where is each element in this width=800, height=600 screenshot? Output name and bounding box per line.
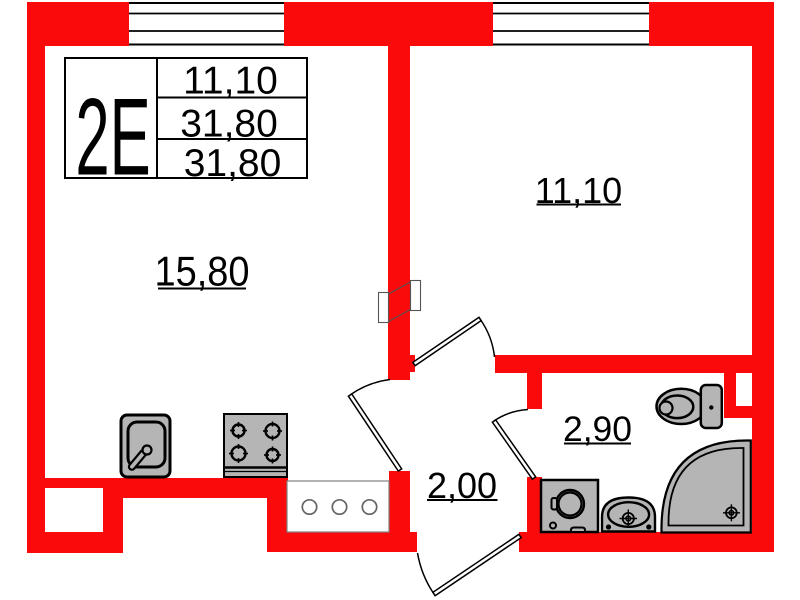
svg-text:31,80: 31,80 — [180, 103, 278, 146]
svg-text:2E: 2E — [75, 75, 150, 198]
svg-text:11,10: 11,10 — [183, 60, 278, 103]
svg-text:31,80: 31,80 — [184, 142, 282, 185]
